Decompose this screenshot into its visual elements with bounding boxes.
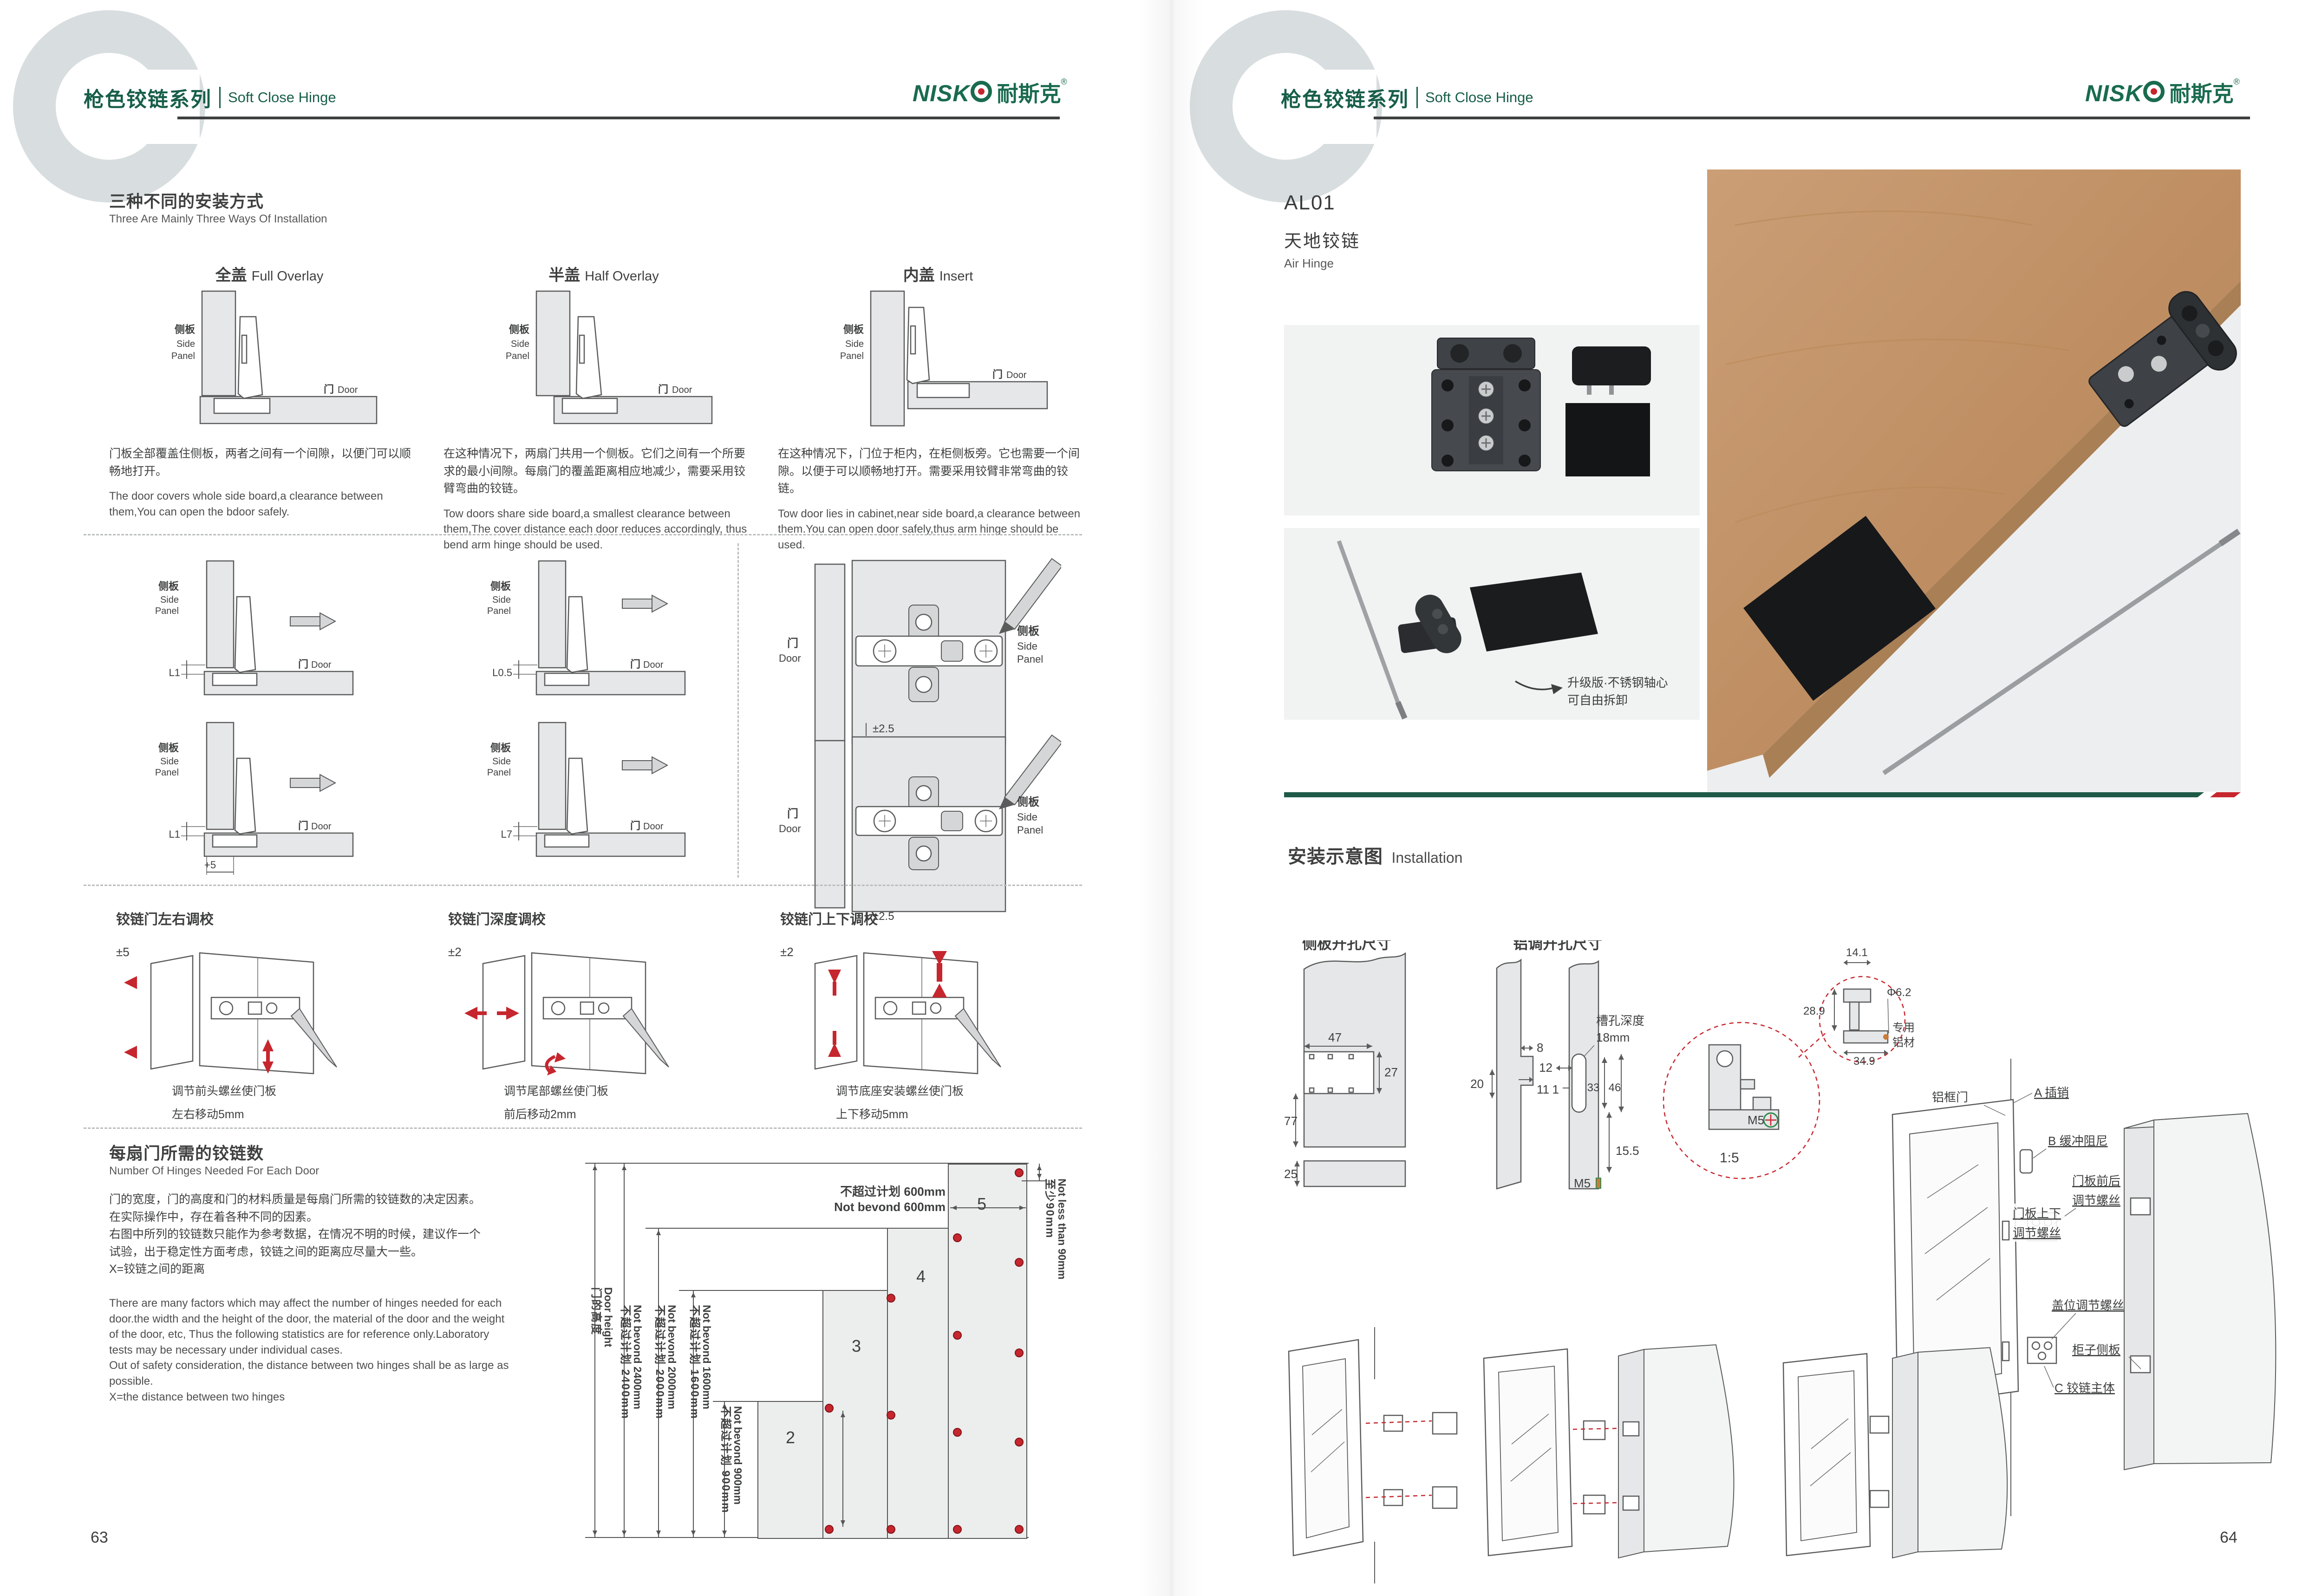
label-cover: 盖位调节螺丝 <box>2052 1298 2124 1312</box>
half-overlay-text-cn: 在这种情况下，两扇门共用一个侧板。它们之间有一个所要求的最小间隙。每扇门的覆盖距… <box>444 445 750 498</box>
hinge-dot <box>1015 1258 1024 1267</box>
svg-text:Door: Door <box>643 821 664 832</box>
adjust-3-diagram <box>783 947 1070 1077</box>
series-title-en: Soft Close Hinge <box>228 89 336 106</box>
dim-25: 25 <box>1284 1167 1298 1181</box>
label-pin: A 插销 <box>2034 1086 2069 1100</box>
svg-text:Panel: Panel <box>487 606 511 616</box>
page-left: 枪色铰链系列 Soft Close Hinge NISK耐斯克® 三种不同的安装… <box>0 0 1156 1596</box>
label-front-back-1: 门板前后 <box>2072 1174 2120 1188</box>
hinge-count-chart: 2 3 4 5 <box>576 1152 1091 1546</box>
hinge-dot <box>953 1428 962 1437</box>
series-title-cn: 枪色铰链系列 <box>84 83 212 112</box>
detail-m5: M5 <box>1748 1113 1764 1127</box>
dim-155: 15.5 <box>1616 1144 1639 1158</box>
full-overlay-heading-en: Full Overlay <box>252 269 324 284</box>
full-overlay-diagram: 侧板 Side Panel 门 Door <box>109 289 425 433</box>
hinges-title-en: Number Of Hinges Needed For Each Door <box>109 1165 319 1178</box>
upgrade-note-1: 升级版·不锈钢轴心 <box>1567 676 1668 690</box>
drill-left-title: 侧板开孔尺寸 <box>1302 940 1391 952</box>
svg-text:Side: Side <box>492 756 511 767</box>
logo-text-cn: 耐斯克 <box>997 82 1061 106</box>
svg-text:门: 门 <box>630 658 640 670</box>
svg-text:Side: Side <box>492 595 511 605</box>
svg-text:侧板: 侧板 <box>509 324 530 335</box>
full-overlay-text-cn: 门板全部覆盖住侧板，两者之间有一个间隙，以便门可以顺畅地打开。 <box>109 445 416 480</box>
hinge-dot <box>1015 1168 1024 1177</box>
install-col-insert: 内盖Insert 侧板 Side Panel 门 Door 在这种情况下，门位于… <box>778 262 1098 553</box>
adjust-3-caption: 调节底座安装螺丝使门板上下移动5mm <box>836 1080 964 1126</box>
label-2000: Not bevond 2000mm不超过计划 2000mm <box>653 1305 678 1420</box>
page-header: 枪色铰链系列 Soft Close Hinge <box>84 83 336 112</box>
page-number-left: 63 <box>91 1529 108 1547</box>
hinges-text-cn: 门的宽度，门的高度和门的材料质量是每扇门所需的铰链数的决定因素。 在实际操作中，… <box>109 1191 601 1278</box>
label-damper: B 缓冲阻尼 <box>2048 1134 2108 1148</box>
clearance-diagram-L05: L0.5 侧板 Side Panel 门Door <box>467 557 727 715</box>
svg-text:Panel: Panel <box>1017 653 1043 665</box>
label-front-back-2: 调节螺丝 <box>2072 1193 2120 1207</box>
slot-depth-label: 槽孔深度 <box>1596 1014 1644 1028</box>
install-col-full-overlay: 全盖Full Overlay 侧板 Side Panel 门 Door 门板全部… <box>109 262 430 520</box>
insert-diagram: 侧板 Side Panel 门 Door <box>778 289 1094 433</box>
assembly-steps <box>1284 1323 2015 1588</box>
header-divider <box>1416 87 1418 108</box>
svg-text:Panel: Panel <box>155 606 179 616</box>
catalog-spread: 枪色铰链系列 Soft Close Hinge NISK耐斯克® 三种不同的安装… <box>0 0 2322 1596</box>
label-hinge-body: C 铰链主体 <box>2055 1381 2115 1395</box>
svg-text:门: 门 <box>787 637 798 650</box>
installation-title-en: Installation <box>1391 849 1462 866</box>
plate-diagram-bottom: ±2.5 ±2.5 门 Door 侧板 Side Panel <box>773 722 1061 922</box>
full-overlay-text-en: The door covers whole side board,a clear… <box>109 489 416 520</box>
logo-text-en: NISK <box>913 80 970 106</box>
header-divider <box>219 87 221 108</box>
svg-text:Side: Side <box>845 339 864 349</box>
dim-1: 1 <box>1552 1082 1559 1096</box>
series-title-cn: 枪色铰链系列 <box>1281 83 1409 112</box>
dim-door-height <box>594 1164 595 1537</box>
dim-label: L1 <box>169 667 180 678</box>
hinge-dot <box>887 1525 895 1534</box>
svg-text:侧板: 侧板 <box>1017 625 1040 638</box>
install-title-en: Three Are Mainly Three Ways Of Installat… <box>109 213 327 226</box>
separator-1 <box>84 534 1082 535</box>
insert-heading-en: Insert <box>939 269 973 284</box>
half-overlay-heading-en: Half Overlay <box>585 269 659 284</box>
adjust-1-diagram <box>118 947 406 1077</box>
product-name-en: Air Hinge <box>1284 256 1334 271</box>
svg-text:侧板: 侧板 <box>490 742 511 754</box>
label-2400: Not bevond 2400mm不超过计划 2400mm <box>619 1305 644 1420</box>
door-label-cn: 门 <box>324 384 334 395</box>
separator-3 <box>84 1127 1082 1129</box>
door-label-en: Door <box>338 385 358 395</box>
page-header: 枪色铰链系列 Soft Close Hinge <box>1281 83 1533 112</box>
svg-text:门: 门 <box>298 658 308 670</box>
svg-text:侧板: 侧板 <box>158 580 179 592</box>
clearance-diagram-L1-plus5: L1 +5 侧板 Side Panel 门Door <box>135 719 395 879</box>
insert-text-cn: 在这种情况下，门位于柜内，在柜侧板旁。它也需要一个间隙。以便于可以顺畅地打开。需… <box>778 445 1084 498</box>
logo-o-icon <box>2143 81 2165 102</box>
bar-label-5: 5 <box>977 1194 986 1214</box>
side-panel-label-en2: Panel <box>171 351 195 361</box>
svg-text:Side: Side <box>511 339 529 349</box>
dim-dia: Φ6.2 <box>1887 986 1911 999</box>
hinge-dot <box>887 1411 895 1420</box>
dim-extra: +5 <box>204 859 216 871</box>
label-900: Not bevond 900mm不超过计划 900mm <box>719 1406 744 1513</box>
svg-text:Side: Side <box>1017 811 1037 823</box>
clearance-diagram-L1: L1 侧板 Side Panel 门Door <box>135 557 395 715</box>
hinges-title-cn: 每扇门所需的铰链数 <box>109 1140 264 1164</box>
svg-text:Side: Side <box>160 595 179 605</box>
detail-scale: 1:5 <box>1720 1150 1739 1166</box>
svg-text:门: 门 <box>630 820 640 832</box>
drill-right-title: 铝调开孔尺寸 <box>1513 940 1602 952</box>
product-name-cn: 天地铰链 <box>1284 227 1360 252</box>
svg-text:Panel: Panel <box>840 351 864 361</box>
page-number-right: 64 <box>2220 1529 2237 1547</box>
svg-text:门: 门 <box>298 820 308 832</box>
dim-27: 27 <box>1384 1065 1398 1079</box>
bar-label-2: 2 <box>786 1428 795 1447</box>
logo-red-dot-icon <box>2151 88 2157 95</box>
section-divider-red <box>2210 792 2241 797</box>
hinge-dot <box>953 1525 962 1534</box>
svg-text:Door: Door <box>311 821 332 832</box>
svg-text:Panel: Panel <box>506 351 529 361</box>
dim-600 <box>950 1207 1026 1208</box>
label-1600: Not bevond 1600mm不超过计划 1600mm <box>688 1305 713 1420</box>
svg-text:侧板: 侧板 <box>158 742 179 754</box>
dim-11: 11 <box>1537 1082 1549 1096</box>
label-side-panel: 柜子侧板 <box>2072 1343 2120 1357</box>
alu-label-1: 专用 <box>1892 1022 1915 1034</box>
svg-text:门: 门 <box>992 369 1003 380</box>
adjust-2-title: 铰链门深度调校 <box>448 908 546 928</box>
dim-20: 20 <box>1470 1077 1484 1091</box>
hinge-dot <box>953 1331 962 1340</box>
dim-label: L1 <box>169 828 180 840</box>
dim-47: 47 <box>1328 1030 1342 1044</box>
hinge-dot <box>887 1294 895 1303</box>
svg-text:侧板: 侧板 <box>1017 795 1040 808</box>
hinge-dot <box>1015 1525 1024 1534</box>
adjust-2-diagram <box>450 947 738 1077</box>
header-rule <box>177 117 1060 119</box>
updown-dim-top: ±2.5 <box>873 723 894 735</box>
section-divider-green <box>1284 792 2204 797</box>
dim-8: 8 <box>1537 1041 1543 1055</box>
adjust-2-caption: 调节尾部螺丝使门板前后移动2mm <box>504 1080 608 1126</box>
adjust-3-title: 铰链门上下调校 <box>780 908 878 928</box>
svg-text:Panel: Panel <box>487 768 511 778</box>
svg-text:Side: Side <box>160 756 179 767</box>
insert-heading-cn: 内盖 <box>903 267 935 284</box>
install-title-cn: 三种不同的安装方式 <box>109 188 264 212</box>
slot-depth-value: 18mm <box>1596 1030 1630 1044</box>
clearance-vertical-divider <box>737 543 739 878</box>
svg-text:门: 门 <box>787 807 798 820</box>
product-code: AL01 <box>1284 191 1336 215</box>
label-frame: 铝框门 <box>1932 1090 1968 1104</box>
product-photo-axis: 升级版·不锈钢轴心 可自由拆卸 <box>1284 528 1700 720</box>
brand-logo: NISK耐斯克® <box>913 77 1067 108</box>
insert-text-en: Tow door lies in cabinet,near side board… <box>778 506 1084 553</box>
dim-46: 46 <box>1609 1081 1621 1094</box>
dim-33: 33 <box>1587 1081 1600 1094</box>
alu-label-2: 铝材 <box>1892 1036 1915 1049</box>
half-overlay-text-en: Tow doors share side board,a smallest cl… <box>444 506 750 553</box>
dim-141: 14.1 <box>1846 946 1868 959</box>
svg-text:Door: Door <box>1006 370 1027 380</box>
svg-text:Door: Door <box>779 652 801 664</box>
label-600: 不超过计划 600mmNot bevond 600mm <box>822 1184 946 1214</box>
hinge-dot <box>825 1525 834 1534</box>
install-col-half-overlay: 半盖Half Overlay 侧板 Side Panel 门 Door 在这种情… <box>444 262 764 553</box>
clearance-diagram-L7: L7 侧板 Side Panel 门Door <box>467 719 727 879</box>
plate-diagram-top: 门 Door 侧板 Side Panel <box>773 555 1061 750</box>
dim-90 <box>1039 1164 1040 1180</box>
svg-text:门: 门 <box>658 384 668 395</box>
label-90: Not less than 90mm至少90mm <box>1043 1179 1068 1279</box>
svg-text:Door: Door <box>643 660 664 670</box>
upgrade-note-2: 可自由拆卸 <box>1567 693 1628 707</box>
installation-title-cn: 安装示意图 <box>1288 847 1383 867</box>
svg-text:侧板: 侧板 <box>843 324 864 335</box>
hinge-dot <box>825 1404 834 1413</box>
side-panel-label-cn: 侧板 <box>175 324 196 335</box>
label-up-down-1: 门板上下 <box>2013 1206 2061 1220</box>
dim-77: 77 <box>1284 1114 1298 1128</box>
dim-x-distance <box>842 1411 843 1527</box>
label-up-down-2: 调节螺丝 <box>2013 1226 2061 1240</box>
drilling-diagrams: 侧板开孔尺寸 铝调开孔尺寸 47 27 77 25 8 20 11 <box>1284 940 1923 1203</box>
dim-label: L7 <box>501 828 512 840</box>
dim-289: 28.9 <box>1803 1005 1825 1017</box>
half-overlay-heading-cn: 半盖 <box>548 267 580 284</box>
dim-label: L0.5 <box>492 667 512 678</box>
logo-registered-mark: ® <box>1061 77 1067 86</box>
side-panel-label-en1: Side <box>176 339 195 349</box>
svg-text:Door: Door <box>311 660 332 670</box>
half-overlay-diagram: 侧板 Side Panel 门 Door <box>444 289 759 433</box>
product-photo-parts <box>1284 325 1700 515</box>
separator-2 <box>84 885 1082 886</box>
dim-349: 34.9 <box>1853 1055 1875 1068</box>
svg-text:侧板: 侧板 <box>490 580 511 592</box>
page-right: 枪色铰链系列 Soft Close Hinge NISK耐斯克® AL01 天地… <box>1180 0 2322 1596</box>
bar-label-3: 3 <box>852 1336 861 1356</box>
svg-text:Panel: Panel <box>155 768 179 778</box>
product-photo-main <box>1707 169 2241 792</box>
dim-m5: M5 <box>1574 1176 1591 1190</box>
header-rule <box>1374 117 2250 119</box>
label-door-height: Door height门的高度 <box>589 1287 614 1347</box>
adjust-1-caption: 调节前头螺丝使门板左右移动5mm <box>172 1080 276 1126</box>
hinge-dot <box>1015 1438 1024 1446</box>
hinge-dot <box>1015 1348 1024 1357</box>
logo-o-icon <box>971 81 992 102</box>
hinges-text-en: There are many factors which may affect … <box>109 1296 601 1405</box>
brand-logo: NISK耐斯克® <box>2085 77 2240 108</box>
installation-heading: 安装示意图 Installation <box>1288 841 1462 868</box>
bar-label-4: 4 <box>916 1267 926 1286</box>
page-fold <box>1139 0 1204 1596</box>
svg-text:Panel: Panel <box>1017 824 1043 836</box>
hinge-dot <box>953 1233 962 1242</box>
svg-text:Side: Side <box>1017 640 1037 652</box>
series-title-en: Soft Close Hinge <box>1425 89 1533 106</box>
svg-text:Door: Door <box>672 385 692 395</box>
svg-text:Door: Door <box>779 823 801 834</box>
adjust-1-title: 铰链门左右调校 <box>116 908 214 928</box>
full-overlay-heading-cn: 全盖 <box>215 267 247 284</box>
logo-red-dot-icon <box>978 88 985 95</box>
dim-12: 12 <box>1539 1061 1552 1075</box>
